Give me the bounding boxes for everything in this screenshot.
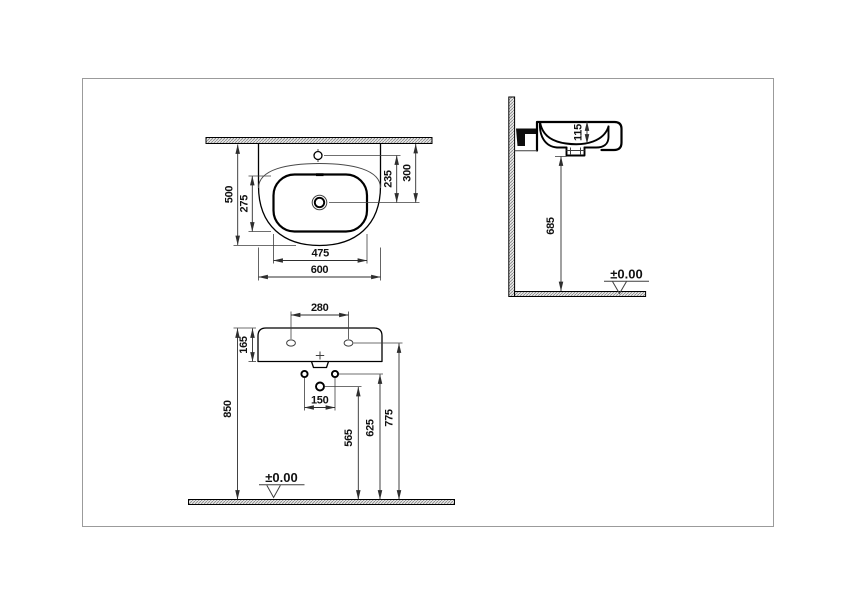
dim-275-label: 275 xyxy=(238,195,250,213)
dim-600-label: 600 xyxy=(311,264,329,276)
floor-section-front xyxy=(189,500,455,505)
floor-section-side xyxy=(515,292,646,297)
dim-565-label: 565 xyxy=(343,429,355,447)
dim-685-label: 685 xyxy=(545,217,557,235)
dim-300-label: 300 xyxy=(402,164,414,182)
dim-625-label: 625 xyxy=(365,419,377,437)
dim-775-label: 775 xyxy=(384,409,396,427)
dim-235-label: 235 xyxy=(383,170,395,188)
dim-475-label: 475 xyxy=(311,248,329,260)
overflow-mark xyxy=(316,173,324,176)
wall-section-plan xyxy=(206,138,432,144)
wall-section-side xyxy=(509,97,515,297)
drawing-sheet: 500 275 235 300 475 600 115 685 ±0 xyxy=(0,0,855,604)
dim-850-label: 850 xyxy=(222,400,234,418)
datum-label-front: ±0.00 xyxy=(265,470,297,485)
dim-115-label: 115 xyxy=(573,124,585,141)
dim-280-label: 280 xyxy=(311,302,329,314)
dim-150-label: 150 xyxy=(311,395,329,407)
datum-label-side: ±0.00 xyxy=(610,267,642,282)
page-border xyxy=(83,79,774,527)
dim-165-label: 165 xyxy=(238,336,250,354)
dim-500-label: 500 xyxy=(224,186,236,204)
technical-drawing: 500 275 235 300 475 600 115 685 ±0 xyxy=(0,0,855,604)
